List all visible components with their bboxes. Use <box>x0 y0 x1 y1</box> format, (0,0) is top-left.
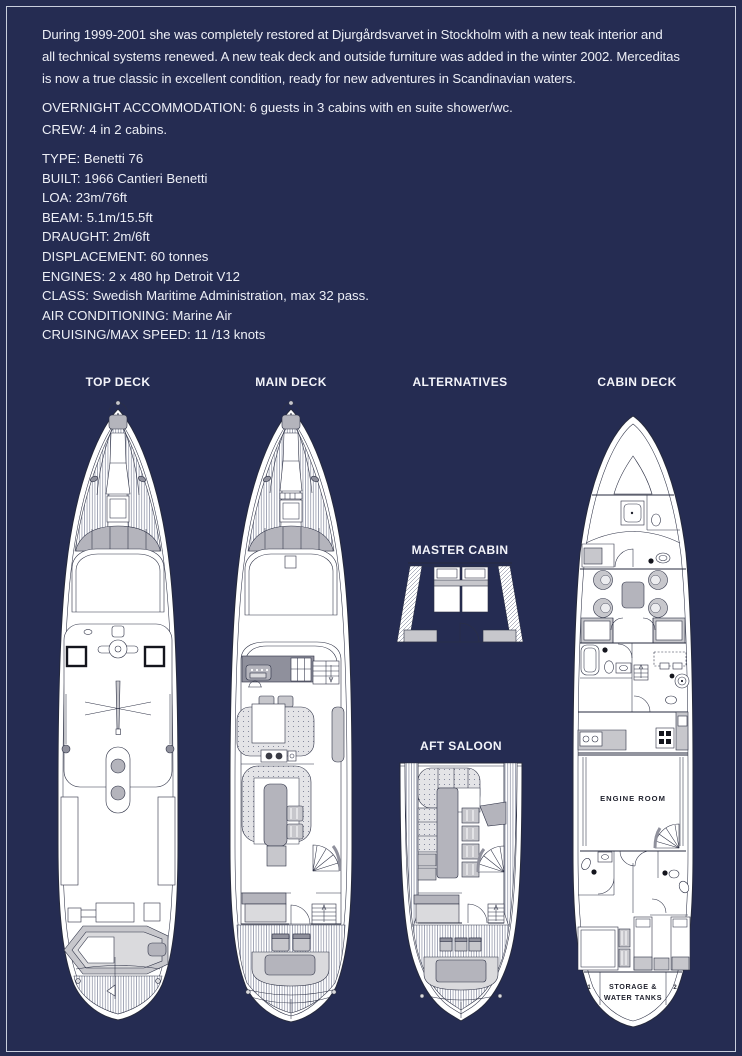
deck-chair <box>440 938 452 951</box>
pillow <box>437 569 457 578</box>
top-deck-plan <box>52 399 184 1024</box>
intro-line: all technical systems renewed. A new tea… <box>42 46 718 68</box>
cabinet <box>418 854 436 866</box>
tub-chair <box>594 571 613 590</box>
mess-table <box>622 582 644 608</box>
storage-label-line1: STORAGE & <box>609 982 657 991</box>
side-bench <box>332 707 344 762</box>
top-deck-header: TOP DECK <box>52 375 184 389</box>
deck-chair <box>272 934 289 951</box>
bow-platform <box>109 415 127 429</box>
storage-label-line2: WATER TANKS <box>604 993 662 1002</box>
washbasin <box>598 852 612 862</box>
winch-stbd <box>166 745 174 753</box>
saloon-sofa <box>242 893 286 922</box>
spec-line: DRAUGHT: 2m/6ft <box>42 227 718 247</box>
toilet <box>652 514 661 526</box>
saloon-chair <box>287 824 303 839</box>
aft-console <box>106 747 130 813</box>
accommodation-line: OVERNIGHT ACCOMMODATION: 6 guests in 3 c… <box>42 97 718 119</box>
cabin-deck-plan: ENGINE ROOM <box>562 408 712 1033</box>
sunpad-stbd <box>158 797 175 885</box>
cabinet <box>418 868 436 880</box>
deck-chair <box>469 938 481 951</box>
tender-dinghy <box>64 926 168 974</box>
washbasin <box>616 663 631 673</box>
spec-line: TYPE: Benetti 76 <box>42 149 718 169</box>
spec-list: TYPE: Benetti 76 BUILT: 1966 Cantieri Be… <box>42 149 718 345</box>
main-deck-plan <box>221 399 361 1031</box>
cabin-deck-header: CABIN DECK <box>562 375 712 389</box>
tub-chair <box>649 599 668 618</box>
master-cabin-plan <box>392 561 528 647</box>
cabin-door <box>460 623 479 642</box>
mast-base <box>106 463 130 494</box>
dinette-settee <box>237 704 314 756</box>
aft-table <box>436 960 486 982</box>
outboard-motor <box>148 943 166 956</box>
stern-teak <box>74 976 162 1014</box>
galley-stove <box>261 750 296 762</box>
toilet <box>605 661 614 673</box>
main-deck-header: MAIN DECK <box>221 375 361 389</box>
washbasin <box>669 870 679 878</box>
spec-line: ENGINES: 2 x 480 hp Detroit V12 <box>42 267 718 287</box>
saloon-chair <box>287 806 303 821</box>
master-cabin-header: MASTER CABIN <box>392 543 528 557</box>
spec-line: LOA: 23m/76ft <box>42 188 718 208</box>
bow-platform <box>282 415 300 429</box>
aft-saloon-plan <box>392 762 530 1030</box>
alternatives-header: ALTERNATIVES <box>390 375 530 389</box>
spec-line: DISPLACEMENT: 60 tonnes <box>42 247 718 267</box>
sideboard <box>267 846 286 866</box>
brochure-page: During 1999-2001 she was completely rest… <box>0 0 742 1056</box>
headboard-band <box>434 580 488 586</box>
tub-chair <box>649 571 668 590</box>
bench-port <box>404 630 437 642</box>
deck-chair <box>293 934 310 951</box>
aft-stairs-up <box>312 904 336 924</box>
spiral-staircase <box>655 824 679 848</box>
stove <box>656 728 674 748</box>
winch-port <box>62 745 70 753</box>
steering-wheel <box>109 640 127 658</box>
toilet <box>666 696 677 704</box>
pillow <box>465 569 485 578</box>
engine-room-label: ENGINE ROOM <box>600 794 666 803</box>
sunpad-port <box>61 797 78 885</box>
aft-bench <box>424 957 498 990</box>
saloon-table <box>264 784 287 846</box>
aft-saloon-header: AFT SALOON <box>392 739 530 753</box>
accommodation-block: OVERNIGHT ACCOMMODATION: 6 guests in 3 c… <box>42 97 718 141</box>
intro-line: is now a true classic in excellent condi… <box>42 68 718 90</box>
saloon-sofa <box>414 895 459 923</box>
accommodation-line: CREW: 4 in 2 cabins. <box>42 119 718 141</box>
aft-table <box>265 955 315 975</box>
saloon-seating <box>242 766 311 846</box>
saloon-table <box>437 788 458 878</box>
bathtub <box>581 645 599 675</box>
deck-chair <box>455 938 467 951</box>
washbasin <box>656 553 670 563</box>
spec-line: BUILT: 1966 Cantieri Benetti <box>42 169 718 189</box>
mast-base <box>280 461 302 491</box>
aft-bench <box>252 952 329 986</box>
tub-chair <box>594 599 613 618</box>
spec-line: AIR CONDITIONING: Marine Air <box>42 306 718 326</box>
aft-stairs-up <box>488 904 504 923</box>
spec-line: CLASS: Swedish Maritime Administration, … <box>42 286 718 306</box>
fore-sundeck <box>72 549 164 612</box>
intro-paragraph: During 1999-2001 she was completely rest… <box>42 24 718 90</box>
spec-line: CRUISING/MAX SPEED: 11 /13 knots <box>42 325 718 345</box>
bench-stbd <box>483 630 516 642</box>
intro-line: During 1999-2001 she was completely rest… <box>42 24 718 46</box>
spec-line: BEAM: 5.1m/15.5ft <box>42 208 718 228</box>
spiral-staircase <box>478 846 504 872</box>
text-column: During 1999-2001 she was completely rest… <box>42 24 718 345</box>
